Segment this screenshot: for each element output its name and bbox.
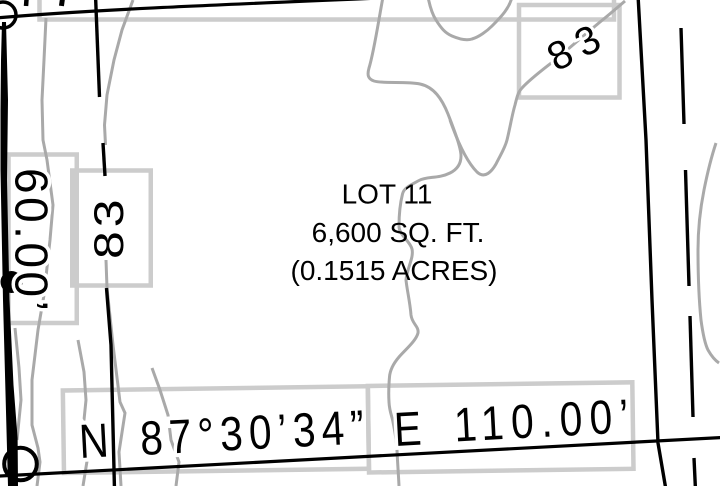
svg-text:60.00’: 60.00’ bbox=[6, 168, 58, 314]
svg-text:83: 83 bbox=[85, 195, 132, 259]
svg-text:6,600 SQ. FT.: 6,600 SQ. FT. bbox=[312, 217, 485, 248]
svg-text:LOT 11: LOT 11 bbox=[342, 179, 433, 210]
svg-text:(0.1515 ACRES): (0.1515 ACRES) bbox=[291, 255, 498, 286]
svg-text:N: N bbox=[78, 414, 110, 468]
svg-text:110.00’: 110.00’ bbox=[453, 390, 637, 452]
svg-text:E: E bbox=[393, 403, 423, 457]
